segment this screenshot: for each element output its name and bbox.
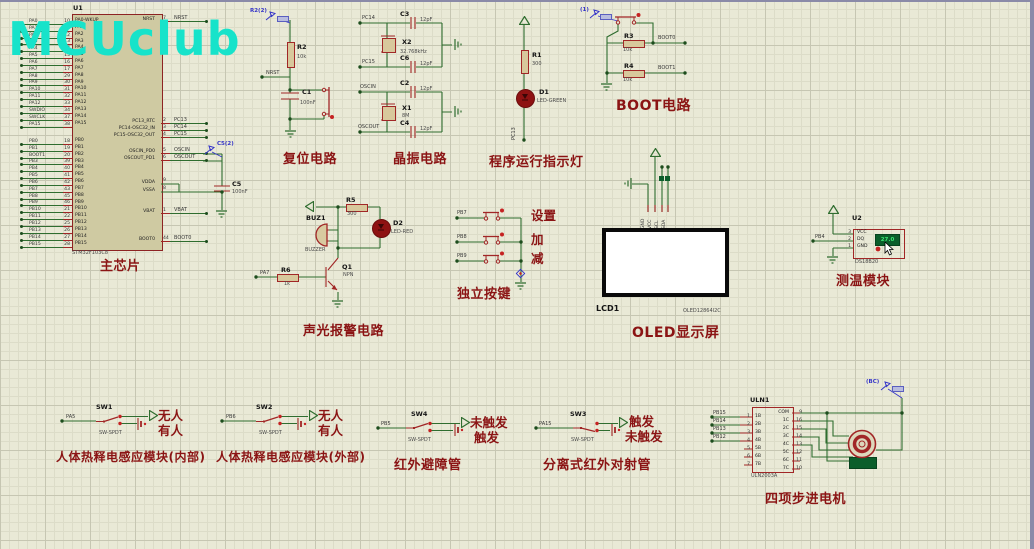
sw1-part: SW-SPDT bbox=[99, 430, 122, 436]
pb12-net-label: PB12 bbox=[713, 434, 726, 440]
ground-icon bbox=[600, 83, 613, 92]
buzzer-symbol[interactable] bbox=[313, 223, 329, 247]
chip-pin-row: PB339 bbox=[22, 159, 72, 166]
chip-pin-row: 6OSCOUT bbox=[161, 154, 207, 161]
ground-icon bbox=[514, 282, 527, 291]
sw4-part: SW-SPDT bbox=[408, 437, 431, 443]
pa5-net-label: PA5 bbox=[66, 414, 75, 420]
chip-pin-row: PA930 bbox=[22, 80, 72, 87]
d1-ref: D1 bbox=[539, 88, 549, 96]
key-row: PB7 设置 bbox=[455, 206, 565, 220]
ir2-caption: 分离式红外对射管 bbox=[543, 454, 651, 473]
pc14-net-label: PC14 bbox=[362, 15, 375, 21]
power-arrow-icon bbox=[519, 16, 530, 25]
power-arrow-icon bbox=[828, 205, 839, 214]
sw4-ref: SW4 bbox=[411, 410, 427, 418]
state-bottom-label: 有人 bbox=[158, 420, 183, 439]
temp-caption: 测温模块 bbox=[836, 270, 890, 289]
buz1-value: BUZZER bbox=[305, 247, 326, 253]
sw2-ref: SW2 bbox=[256, 403, 272, 411]
stepper-probe-label: (BC) bbox=[866, 379, 879, 385]
c3-value: 12pF bbox=[420, 17, 432, 23]
c3-ref: C3 bbox=[400, 10, 409, 18]
ground-icon bbox=[331, 300, 344, 309]
stepper-motor[interactable] bbox=[847, 429, 877, 459]
temp-pins: 3VCC2DQ1GND bbox=[846, 230, 876, 251]
pc15-net-label: PC15 bbox=[362, 59, 375, 65]
chip-pin-row: PA1538 bbox=[22, 121, 72, 128]
sw2-part: SW-SPDT bbox=[259, 430, 282, 436]
chip-pin-row: PB018 bbox=[22, 138, 72, 145]
pb6-net-label: PB6 bbox=[226, 414, 236, 420]
chip-pin-row: PB946 bbox=[22, 200, 72, 207]
mouse-cursor-icon bbox=[884, 242, 894, 256]
ir1-caption: 红外避障管 bbox=[394, 454, 462, 473]
push-button[interactable] bbox=[614, 12, 641, 26]
chip-pin-row: PB541 bbox=[22, 172, 72, 179]
buz1-ref: BUZ1 bbox=[306, 214, 325, 222]
ground-icon bbox=[826, 256, 839, 265]
chip-pin-row: PB845 bbox=[22, 193, 72, 200]
pb14-net-label: PB14 bbox=[713, 418, 726, 424]
crystal-caption: 晶振电路 bbox=[393, 148, 447, 167]
state-arrow-icon bbox=[149, 410, 158, 421]
keys-caption: 独立按键 bbox=[457, 283, 511, 302]
r2-ref: R2 bbox=[297, 43, 307, 51]
sw3-part: SW-SPDT bbox=[571, 437, 594, 443]
state-bottom-label: 未触发 bbox=[625, 426, 663, 445]
sw1-ref: SW1 bbox=[96, 403, 112, 411]
c1-ref: C1 bbox=[302, 88, 311, 96]
chip-pin-row: PB1122 bbox=[22, 213, 72, 220]
led-d1[interactable] bbox=[516, 89, 535, 108]
x2-ref: X2 bbox=[402, 38, 412, 46]
x1-ref: X1 bbox=[402, 104, 412, 112]
chip-pin-row: 3PC14 bbox=[161, 124, 207, 131]
chip-pin-row: PB1225 bbox=[22, 220, 72, 227]
spdt-switch[interactable] bbox=[96, 414, 123, 428]
stepper-caption: 四项步进电机 bbox=[765, 488, 846, 507]
chip-pin-row: 1VBAT bbox=[161, 207, 207, 214]
uln-left-pins: 11B22B33B44B55B66B77B bbox=[744, 413, 766, 469]
voltage-probe-icon[interactable] bbox=[204, 145, 216, 155]
key-net-label: PB8 bbox=[457, 234, 467, 240]
power-arrow-icon bbox=[650, 148, 661, 157]
terminal-block bbox=[659, 176, 664, 181]
probe-tag bbox=[600, 14, 612, 20]
state-bottom-label: 触发 bbox=[474, 427, 499, 446]
power-arrow-icon bbox=[305, 201, 314, 212]
uln-part: ULN2003A bbox=[751, 473, 777, 479]
ground-icon bbox=[454, 38, 463, 51]
pc13-net-label: PC13 bbox=[511, 127, 517, 140]
oscin-net-label: OSCIN bbox=[360, 84, 376, 90]
chip-caption: 主芯片 bbox=[100, 255, 141, 274]
chip-pin-row: PA829 bbox=[22, 73, 72, 80]
led-d2[interactable] bbox=[372, 219, 391, 238]
boot1-net-label: BOOT1 bbox=[658, 65, 675, 71]
c6-ref: C6 bbox=[400, 54, 409, 62]
chip-pin-row: PB743 bbox=[22, 186, 72, 193]
pa15-net-label: PA15 bbox=[539, 421, 551, 427]
key-net-label: PB7 bbox=[457, 210, 467, 216]
ground-icon bbox=[623, 177, 632, 190]
crystal-x2[interactable] bbox=[382, 38, 396, 53]
q1-value: NPN bbox=[343, 272, 354, 278]
chip-pin-row: 4PC15 bbox=[161, 131, 207, 138]
chip-pin-row: PA1031 bbox=[22, 86, 72, 93]
spdt-switch[interactable] bbox=[406, 421, 433, 435]
watermark: MCUclub bbox=[8, 12, 241, 66]
state-bottom-label: 有人 bbox=[318, 420, 343, 439]
r2-value: 10k bbox=[297, 54, 306, 60]
push-button[interactable] bbox=[482, 232, 504, 245]
spdt-switch[interactable] bbox=[573, 421, 600, 435]
chip-pin-row: SWCLK37 bbox=[22, 114, 72, 121]
key-net-label: PB9 bbox=[457, 253, 467, 259]
r3-ref: R3 bbox=[624, 32, 634, 40]
chip-pb-nets[interactable]: PB018PB119BOOT120PB339PB440PB541PB642PB7… bbox=[22, 138, 72, 248]
chip-pin-row: PA1132 bbox=[22, 93, 72, 100]
r4-value: 10k bbox=[623, 77, 632, 83]
c5-value: 100nF bbox=[232, 189, 248, 195]
chip-pb-names: PB0PB1PB2PB3PB4PB5PB6PB7PB8PB9PB10PB11PB… bbox=[75, 138, 125, 248]
c2-ref: C2 bbox=[400, 79, 409, 87]
chip-pin-row: BOOT120 bbox=[22, 152, 72, 159]
push-button[interactable] bbox=[482, 251, 504, 264]
state-arrow-icon bbox=[309, 410, 318, 421]
r4-ref: R4 bbox=[624, 62, 634, 70]
alarm-caption: 声光报警电路 bbox=[303, 320, 384, 339]
oled-caption: OLED显示屏 bbox=[632, 322, 720, 342]
lcd1-ref: LCD1 bbox=[596, 304, 619, 313]
oled-pin-labels: GNDVCCSCLSDA bbox=[641, 213, 675, 229]
r5-ref: R5 bbox=[346, 196, 356, 204]
reset-probe-label: R2(2) bbox=[250, 8, 267, 14]
ground-icon bbox=[215, 210, 228, 219]
chip-pin-row: PA717 bbox=[22, 66, 72, 73]
chip-pin-row: PA1233 bbox=[22, 100, 72, 107]
resistor-r2[interactable] bbox=[287, 42, 295, 68]
crystal-x1[interactable] bbox=[382, 106, 396, 121]
r3-value: 10k bbox=[623, 47, 632, 53]
chip-pin-row: PB642 bbox=[22, 179, 72, 186]
uln-right-pins: COM91C162C153C144C135C126C117C10 bbox=[774, 409, 802, 473]
probe-tag bbox=[892, 386, 904, 392]
chip-pin-row: PB1528 bbox=[22, 241, 72, 248]
reset-caption: 复位电路 bbox=[283, 148, 337, 167]
c1-value: 100nF bbox=[300, 100, 316, 106]
ground-icon bbox=[454, 105, 463, 118]
d1-value: LED-GREEN bbox=[537, 98, 566, 104]
boot-probe-label: (1) bbox=[580, 7, 589, 13]
push-button[interactable] bbox=[482, 208, 504, 221]
chip-ref: U1 bbox=[73, 4, 83, 12]
r1-ref: R1 bbox=[532, 51, 542, 59]
chip-pin-row: 5OSCIN bbox=[161, 147, 207, 154]
pb5-net-label: PB5 bbox=[381, 421, 391, 427]
pa7-net-label: PA7 bbox=[260, 270, 269, 276]
key-row: PB8 加 bbox=[455, 230, 565, 244]
pb13-net-label: PB13 bbox=[713, 426, 726, 432]
key-function-label: 加 bbox=[531, 229, 544, 248]
sw3-ref: SW3 bbox=[570, 410, 586, 418]
r6-ref: R6 bbox=[281, 266, 291, 274]
probe-tag bbox=[277, 16, 289, 22]
spdt-switch[interactable] bbox=[256, 414, 283, 428]
nrst-net-label: NRST bbox=[266, 70, 279, 76]
pb15-net-label: PB15 bbox=[713, 410, 726, 416]
temp-part: DS18B20 bbox=[855, 259, 878, 265]
c4-value: 12pF bbox=[420, 126, 432, 132]
chip-pin-row: 2PC13 bbox=[161, 117, 207, 124]
c2-value: 12pF bbox=[420, 86, 432, 92]
pb4-net-label: PB4 bbox=[815, 234, 825, 240]
chip-pin-row: PB119 bbox=[22, 145, 72, 152]
push-button[interactable] bbox=[321, 85, 335, 119]
vssa-pin-number: 8 bbox=[163, 186, 166, 191]
c6-value: 12pF bbox=[420, 61, 432, 67]
oscout-net-label: OSCOUT bbox=[358, 124, 379, 130]
chip-pin-row: PB440 bbox=[22, 165, 72, 172]
state-arrow-icon bbox=[461, 417, 470, 428]
pir2-caption: 人体热释电感应模块(外部) bbox=[216, 448, 365, 465]
resistor-r1[interactable] bbox=[521, 50, 529, 74]
uln1-ref: ULN1 bbox=[750, 396, 769, 404]
r1-value: 300 bbox=[532, 61, 542, 67]
indicator-caption: 程序运行指示灯 bbox=[489, 151, 584, 170]
boot0-net-label: BOOT0 bbox=[658, 35, 675, 41]
key-function-label: 设置 bbox=[531, 205, 556, 224]
q1-ref: Q1 bbox=[342, 263, 352, 271]
chip-pin-row: SWDIO34 bbox=[22, 107, 72, 114]
boot-caption: BOOT电路 bbox=[616, 95, 691, 115]
c5-ref: C5 bbox=[232, 180, 241, 188]
key-function-label: 减 bbox=[531, 248, 544, 267]
chip-pin-row: 44BOOT0 bbox=[161, 235, 207, 242]
r5-value: 300 bbox=[347, 211, 357, 217]
voltage-probe-icon[interactable] bbox=[880, 381, 892, 391]
chip-pin-row: PB1326 bbox=[22, 227, 72, 234]
chip-pin-row: PB1427 bbox=[22, 234, 72, 241]
d2-ref: D2 bbox=[393, 219, 403, 227]
schematic-canvas[interactable]: MCUclub bbox=[0, 0, 1034, 549]
d2-value: LED-RED bbox=[391, 229, 413, 235]
terminal-block bbox=[665, 176, 670, 181]
pir1-caption: 人体热释电感应模块(内部) bbox=[56, 448, 205, 465]
chip-pin-row: PB1021 bbox=[22, 206, 72, 213]
oled-part: OLED12864I2C bbox=[683, 308, 721, 314]
u2-ref: U2 bbox=[852, 214, 862, 222]
c5-probe-label: C5(2) bbox=[217, 141, 234, 147]
ground-icon bbox=[284, 130, 297, 139]
vdda-pin-number: 9 bbox=[163, 178, 166, 183]
c4-ref: C4 bbox=[400, 119, 409, 127]
oled-screen[interactable] bbox=[602, 228, 729, 297]
key-row: PB9 减 bbox=[455, 249, 565, 263]
r6-value: 1k bbox=[284, 281, 290, 287]
